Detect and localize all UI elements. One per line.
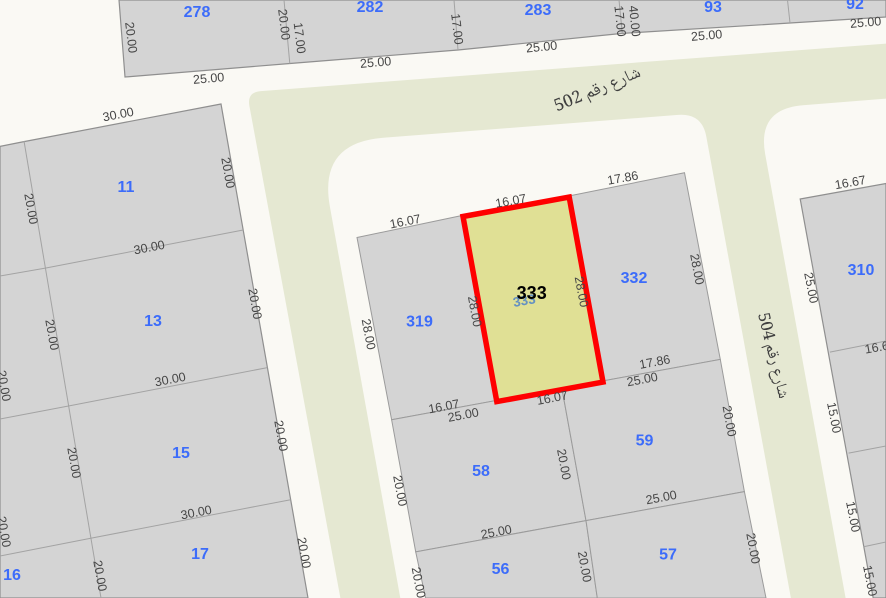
svg-text:11: 11	[118, 179, 135, 196]
svg-text:283: 283	[525, 2, 552, 19]
svg-text:25.00: 25.00	[690, 27, 722, 44]
svg-text:17: 17	[191, 546, 209, 563]
svg-text:25.00: 25.00	[525, 39, 558, 56]
svg-text:278: 278	[184, 4, 211, 21]
svg-text:16: 16	[3, 567, 21, 584]
svg-text:25.00: 25.00	[359, 54, 391, 71]
svg-text:15: 15	[172, 445, 190, 462]
svg-text:59: 59	[636, 433, 654, 450]
svg-text:310: 310	[848, 262, 875, 279]
svg-text:282: 282	[357, 0, 384, 16]
svg-text:93: 93	[704, 0, 722, 16]
svg-text:332: 332	[621, 270, 648, 287]
svg-text:57: 57	[659, 547, 677, 564]
svg-text:56: 56	[492, 561, 510, 578]
svg-text:13: 13	[144, 313, 162, 330]
svg-text:58: 58	[472, 463, 490, 480]
svg-text:319: 319	[406, 314, 433, 331]
svg-text:333: 333	[517, 283, 547, 303]
svg-text:25.00: 25.00	[192, 70, 224, 87]
svg-text:25.00: 25.00	[849, 14, 881, 31]
svg-text:92: 92	[846, 0, 864, 13]
